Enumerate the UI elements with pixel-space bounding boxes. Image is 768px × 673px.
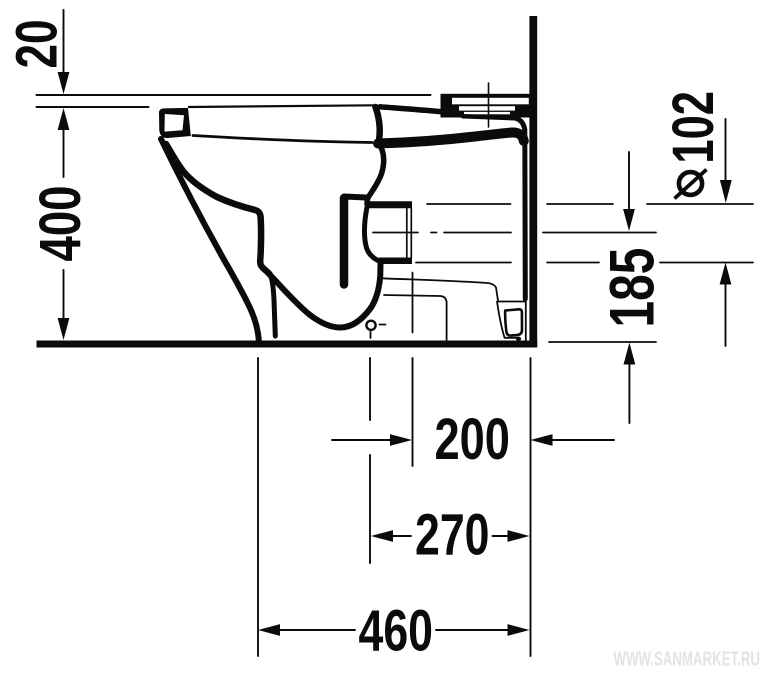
svg-text:185: 185 [596,248,667,328]
svg-text:200: 200 [435,408,510,473]
svg-text:270: 270 [415,502,489,567]
svg-text:102: 102 [661,91,725,164]
svg-text:20: 20 [4,19,69,68]
svg-text:460: 460 [359,598,433,663]
svg-text:400: 400 [29,186,94,262]
svg-text:WWW.SANMARKET.RU: WWW.SANMARKET.RU [614,648,760,670]
